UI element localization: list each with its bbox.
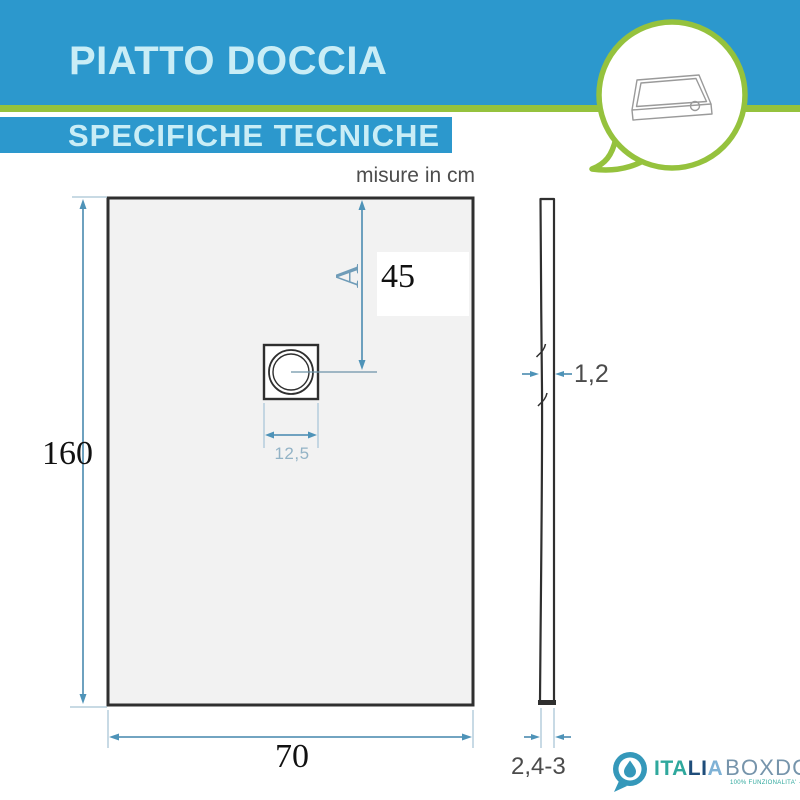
logo-name-part3: A xyxy=(707,758,723,779)
logo-text: ITALIABOXDOCCIA 100% FUNZIONALITA' · EST… xyxy=(654,757,800,786)
logo-name-part2: LI xyxy=(688,758,708,779)
logo-name-part1: ITA xyxy=(654,758,688,779)
logo-speech-bubble-icon xyxy=(609,748,651,794)
thickness-dimension-label: 1,2 xyxy=(574,360,609,389)
italiaboxdoccia-logo: ITALIABOXDOCCIA 100% FUNZIONALITA' · EST… xyxy=(609,748,800,794)
technical-drawing xyxy=(0,0,800,800)
side-view-outline xyxy=(537,199,557,705)
screenshot-root: PIATTO DOCCIA SPECIFICHE TECNICHE xyxy=(0,0,800,800)
width-dimension-label: 70 xyxy=(262,740,322,774)
logo-name-rest: BOXDOCCIA xyxy=(725,757,800,779)
height-dimension-label: 160 xyxy=(42,437,93,471)
logo-tagline: 100% FUNZIONALITA' · ESTETICA · PRATICIT… xyxy=(730,780,800,786)
units-note: misure in cm xyxy=(355,164,475,188)
base-dimension-label: 2,4-3 xyxy=(511,753,566,781)
drain-width-dimension-label: 12,5 xyxy=(268,444,316,464)
drain-offset-letter: A xyxy=(330,258,366,294)
drain-offset-dimension-label: 45 xyxy=(381,260,415,294)
